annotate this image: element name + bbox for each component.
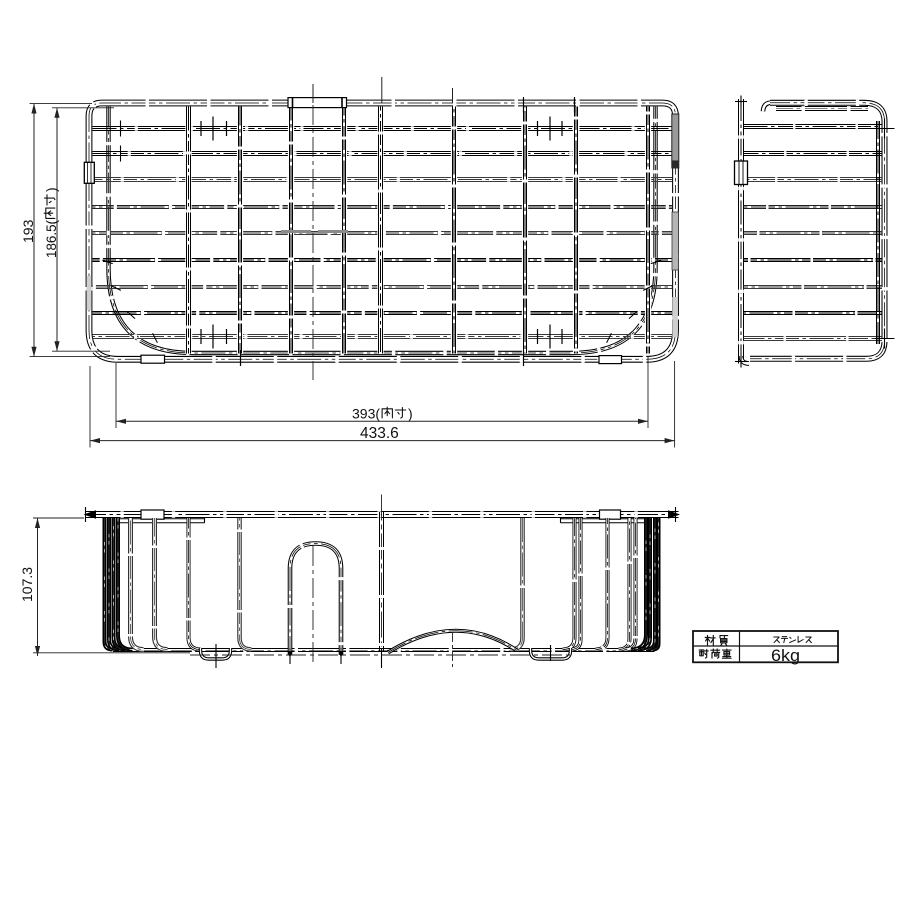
- svg-text:186.5(: 186.5(: [43, 220, 59, 258]
- svg-text:6kg: 6kg: [771, 646, 800, 665]
- svg-text:107.3: 107.3: [19, 567, 35, 602]
- svg-text:393(: 393(: [352, 406, 380, 422]
- svg-text:): ): [43, 187, 59, 192]
- svg-text:433.6: 433.6: [360, 425, 399, 442]
- svg-text:): ): [408, 406, 413, 422]
- svg-text:193: 193: [20, 219, 36, 243]
